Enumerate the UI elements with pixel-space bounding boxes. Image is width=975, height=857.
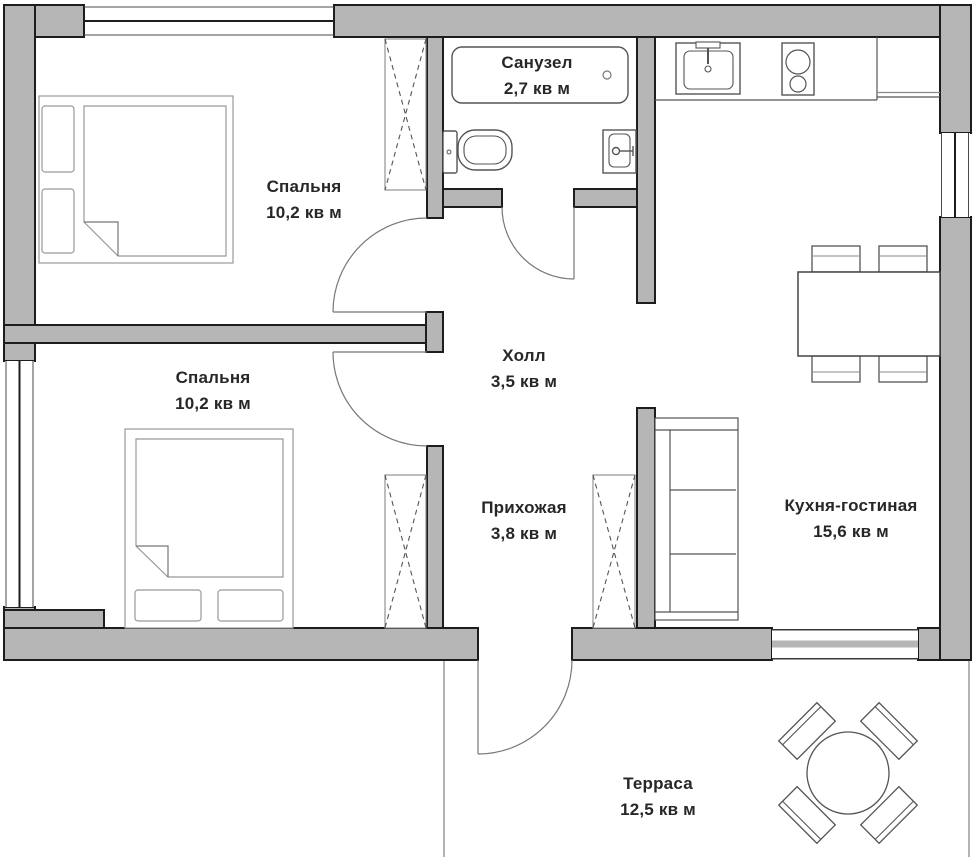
- wardrobe-bedroom-2: [385, 475, 426, 628]
- door-entrance: [478, 660, 572, 754]
- doors: [333, 207, 574, 754]
- mattress: [84, 106, 226, 256]
- toilet: [443, 130, 512, 173]
- dining-chair: [812, 356, 860, 382]
- door-bedroom-2: [333, 352, 427, 446]
- washbasin: [603, 130, 636, 173]
- bathroom-fixtures: [443, 47, 636, 173]
- kitchen-fixtures: [655, 37, 940, 620]
- wall-bathroom-bottom-left: [443, 189, 502, 207]
- pillow: [42, 189, 74, 253]
- mattress: [136, 439, 283, 577]
- dining-table: [798, 272, 940, 356]
- wall-hall-jamb: [426, 312, 443, 352]
- pillow: [135, 590, 201, 621]
- wall-bottom-middle: [572, 628, 772, 660]
- wall-right-lower: [940, 217, 971, 660]
- bed-bedroom-1: [39, 96, 233, 263]
- window-top-bedroom-1: [84, 6, 334, 36]
- window-right-kitchen: [941, 133, 970, 217]
- bathtub-drain: [603, 71, 611, 79]
- shelving-unit: [655, 418, 738, 620]
- wall-bathroom-right: [637, 37, 655, 303]
- wall-top: [334, 5, 971, 37]
- wall-hall-lower: [427, 446, 443, 628]
- window-left-bedroom-2: [5, 361, 34, 607]
- wardrobe-entryway: [593, 475, 635, 628]
- pillow: [42, 106, 74, 172]
- dining-set: [798, 246, 940, 382]
- pillow: [218, 590, 283, 621]
- kitchen-sink: [676, 42, 740, 94]
- burner-small: [790, 76, 806, 92]
- wall-left-upper: [4, 5, 35, 361]
- wall-right-upper: [940, 5, 971, 133]
- bed-bedroom-2: [125, 429, 293, 628]
- bedroom-furniture: [39, 96, 293, 628]
- kitchen-tap-bar: [696, 42, 720, 48]
- dining-chair: [879, 356, 927, 382]
- burner-large: [786, 50, 810, 74]
- terrace: [444, 661, 969, 857]
- kitchen-tap-spout: [705, 66, 711, 72]
- dining-chair: [812, 246, 860, 272]
- dining-chair: [879, 246, 927, 272]
- toilet-button: [447, 150, 451, 154]
- wardrobe-bedroom-1: [385, 39, 426, 190]
- door-bathroom: [502, 207, 574, 279]
- wall-kitchen-stub: [637, 408, 655, 628]
- sliding-window-terrace: [772, 630, 918, 659]
- bathtub: [452, 47, 628, 103]
- washbasin-tap: [613, 148, 620, 155]
- round-terrace-table: [807, 732, 889, 814]
- floor-plan-drawing: [0, 0, 975, 857]
- cooktop: [782, 43, 814, 95]
- wall-bottom-left: [4, 628, 478, 660]
- wall-bedroom-divider: [4, 325, 426, 343]
- floor-plan: Спальня 10,2 кв м Санузел 2,7 кв м Спаль…: [0, 0, 975, 857]
- door-bedroom-1: [333, 218, 427, 312]
- toilet-bowl-inner: [464, 136, 506, 164]
- wall-hall-upper: [427, 37, 443, 218]
- terrace-furniture: [779, 703, 918, 844]
